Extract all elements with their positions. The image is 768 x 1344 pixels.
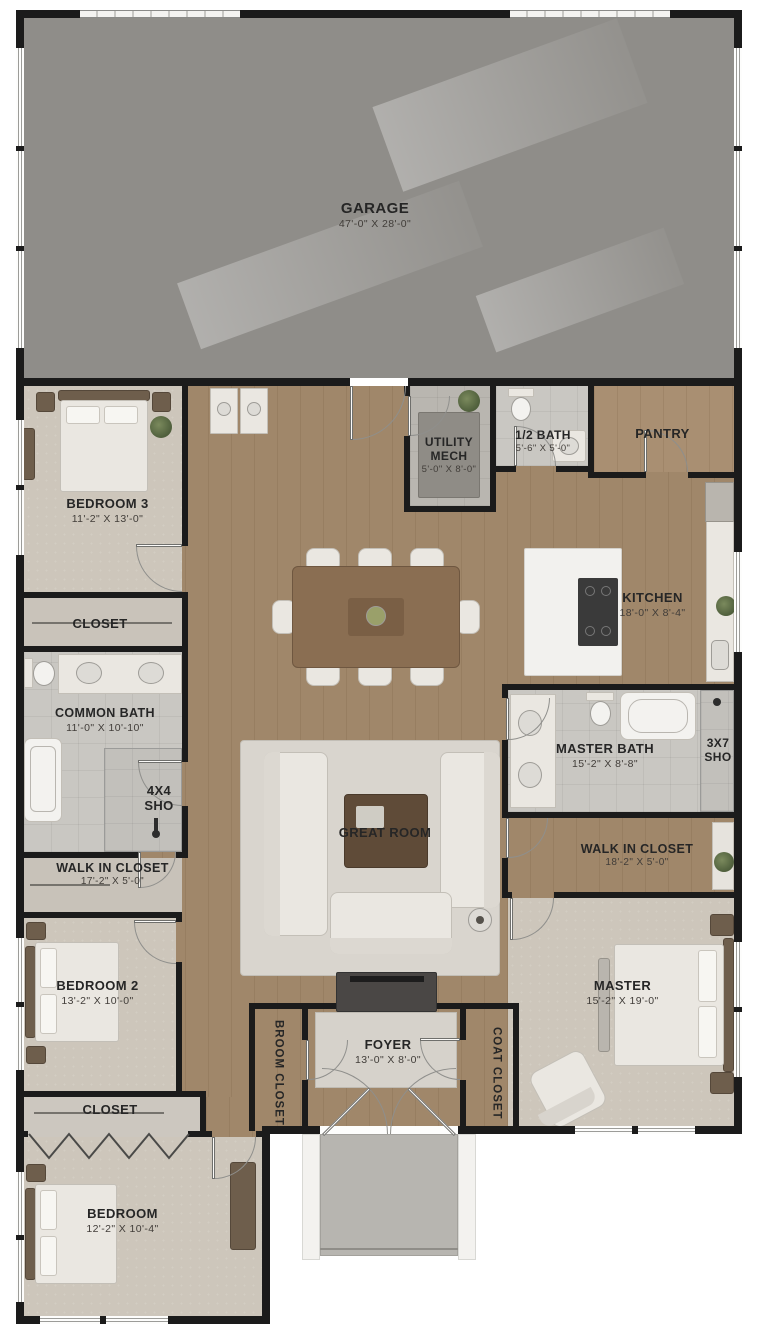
wall bbox=[182, 386, 188, 546]
wall bbox=[16, 1091, 206, 1097]
wall bbox=[460, 1080, 466, 1131]
door-leaf bbox=[408, 396, 411, 436]
wall bbox=[404, 436, 410, 512]
bed-headboard bbox=[723, 938, 734, 1072]
door-leaf bbox=[350, 386, 353, 440]
door-leaf bbox=[138, 760, 182, 763]
closet-bottom-floor bbox=[24, 1097, 200, 1137]
wall bbox=[262, 1126, 270, 1324]
shower-3x7-floor bbox=[700, 690, 734, 812]
pillow bbox=[66, 406, 100, 424]
door-leaf bbox=[514, 426, 517, 466]
wall bbox=[182, 592, 188, 762]
wall bbox=[490, 466, 516, 472]
sink bbox=[559, 437, 579, 455]
window-mullion bbox=[734, 1007, 742, 1012]
window-mullion bbox=[16, 146, 24, 151]
washer-door bbox=[217, 402, 231, 416]
wall bbox=[16, 912, 182, 918]
burner bbox=[601, 626, 611, 636]
sofa-back bbox=[484, 752, 500, 908]
wall bbox=[16, 646, 188, 652]
toilet-tank bbox=[508, 388, 534, 397]
bed-bench bbox=[598, 958, 610, 1052]
toilet-bowl bbox=[33, 661, 55, 686]
closet-rod bbox=[30, 884, 110, 886]
nightstand bbox=[26, 1046, 46, 1064]
bathtub-basin bbox=[30, 746, 56, 812]
toilet-tank bbox=[24, 658, 33, 688]
porch-pillar bbox=[458, 1134, 476, 1260]
pillow bbox=[40, 994, 57, 1034]
wall bbox=[16, 10, 80, 18]
nightstand bbox=[710, 914, 734, 936]
wall bbox=[588, 386, 594, 478]
wall bbox=[176, 962, 182, 1091]
pillow bbox=[40, 1190, 57, 1230]
nightstand bbox=[26, 1164, 46, 1182]
wall bbox=[188, 1131, 212, 1137]
pillow bbox=[40, 1236, 57, 1276]
wall bbox=[404, 506, 496, 512]
sofa-back bbox=[264, 752, 280, 936]
plant bbox=[150, 416, 172, 438]
wall bbox=[460, 1009, 466, 1040]
nightstand bbox=[152, 392, 171, 412]
bathtub-basin bbox=[628, 699, 688, 733]
nightstand bbox=[36, 392, 55, 412]
wall bbox=[16, 592, 188, 598]
wall bbox=[176, 852, 188, 858]
wall bbox=[256, 1131, 262, 1137]
door-leaf bbox=[306, 1040, 309, 1080]
porch-step bbox=[320, 1248, 458, 1250]
window-mullion bbox=[734, 146, 742, 151]
wall bbox=[176, 912, 182, 922]
wall bbox=[490, 386, 496, 512]
toilet-bowl bbox=[590, 701, 611, 726]
garage-door bbox=[80, 10, 240, 18]
door-leaf bbox=[510, 898, 513, 940]
door-leaf bbox=[420, 1038, 460, 1041]
plant bbox=[458, 390, 480, 412]
dryer-door bbox=[247, 402, 261, 416]
wall bbox=[502, 684, 508, 698]
lamp bbox=[476, 916, 484, 924]
closet-rod bbox=[32, 622, 172, 624]
wall bbox=[408, 378, 742, 386]
floor-plan: GARAGE 47'-0" X 28'-0" BEDROOM 3 11'-2" … bbox=[0, 0, 768, 1344]
plant bbox=[716, 596, 736, 616]
wall bbox=[240, 10, 510, 18]
wall bbox=[302, 1080, 308, 1131]
wall bbox=[513, 1009, 519, 1131]
wall bbox=[262, 1126, 320, 1134]
window-mullion bbox=[16, 246, 24, 251]
burner bbox=[601, 586, 611, 596]
nightstand bbox=[710, 1072, 734, 1094]
pillow bbox=[40, 948, 57, 988]
door-leaf bbox=[212, 1137, 215, 1179]
door-leaf bbox=[644, 430, 647, 472]
plant bbox=[714, 852, 734, 872]
table-centerpiece bbox=[366, 606, 386, 626]
window-mullion bbox=[734, 246, 742, 251]
wall bbox=[302, 1009, 308, 1040]
window-mullion bbox=[632, 1126, 638, 1134]
pillow bbox=[698, 950, 717, 1002]
kitchen-sink bbox=[711, 640, 729, 670]
sink bbox=[138, 662, 164, 684]
door-leaf bbox=[506, 698, 509, 740]
wall bbox=[688, 472, 742, 478]
wall bbox=[249, 1009, 255, 1131]
shower-head bbox=[713, 698, 721, 706]
wall bbox=[249, 1003, 340, 1009]
window-mullion bbox=[100, 1316, 106, 1324]
door-leaf bbox=[134, 920, 176, 923]
bifold-doors bbox=[28, 1132, 190, 1162]
pillow bbox=[698, 1006, 717, 1058]
pillow bbox=[104, 406, 138, 424]
window bbox=[16, 48, 24, 348]
garage-door bbox=[510, 10, 670, 18]
coffee-table-tray bbox=[356, 806, 384, 828]
wall bbox=[588, 472, 646, 478]
wall bbox=[16, 1131, 28, 1137]
window bbox=[734, 552, 742, 652]
sink bbox=[518, 762, 542, 788]
door-leaf bbox=[136, 544, 182, 547]
dresser bbox=[230, 1162, 256, 1250]
wall bbox=[502, 740, 508, 818]
refrigerator bbox=[705, 482, 734, 522]
sink bbox=[76, 662, 102, 684]
tv-screen bbox=[350, 976, 424, 982]
window-mullion bbox=[16, 485, 24, 490]
closet-rod bbox=[34, 1112, 164, 1114]
burner bbox=[585, 586, 595, 596]
toilet-tank bbox=[586, 692, 614, 701]
porch-pillar bbox=[302, 1134, 320, 1260]
window-mullion bbox=[16, 1002, 24, 1007]
wall bbox=[670, 10, 742, 18]
shower-drain bbox=[154, 818, 158, 832]
door-leaf bbox=[506, 818, 509, 858]
porch bbox=[320, 1134, 458, 1256]
sofa-back bbox=[330, 938, 452, 954]
wall bbox=[16, 852, 140, 858]
wall bbox=[16, 378, 350, 386]
wall bbox=[182, 806, 188, 852]
wall bbox=[502, 684, 742, 690]
cooktop bbox=[578, 578, 618, 646]
wall bbox=[554, 892, 742, 898]
window-mullion bbox=[16, 1235, 24, 1240]
window bbox=[734, 48, 742, 348]
wall bbox=[435, 1003, 519, 1009]
toilet-bowl bbox=[511, 397, 531, 421]
nightstand bbox=[26, 922, 46, 940]
door-leaf bbox=[138, 852, 141, 888]
burner bbox=[585, 626, 595, 636]
